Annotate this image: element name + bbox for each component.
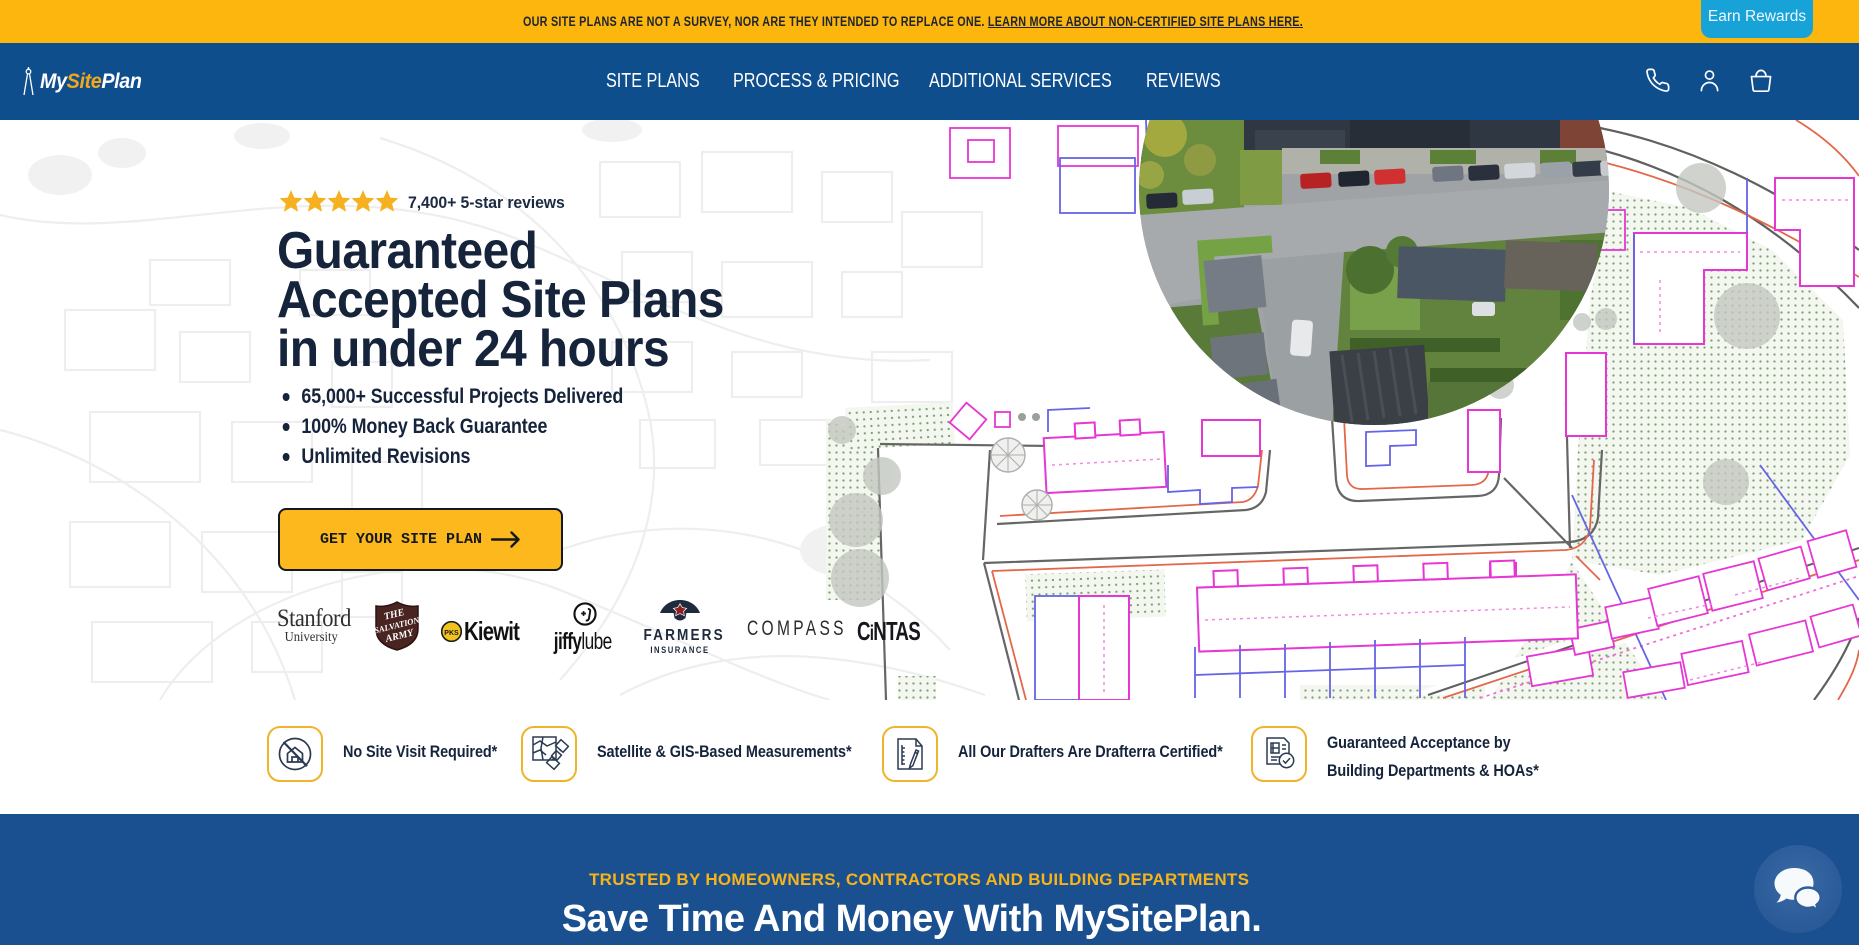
svg-text:PKS: PKS: [444, 630, 459, 637]
